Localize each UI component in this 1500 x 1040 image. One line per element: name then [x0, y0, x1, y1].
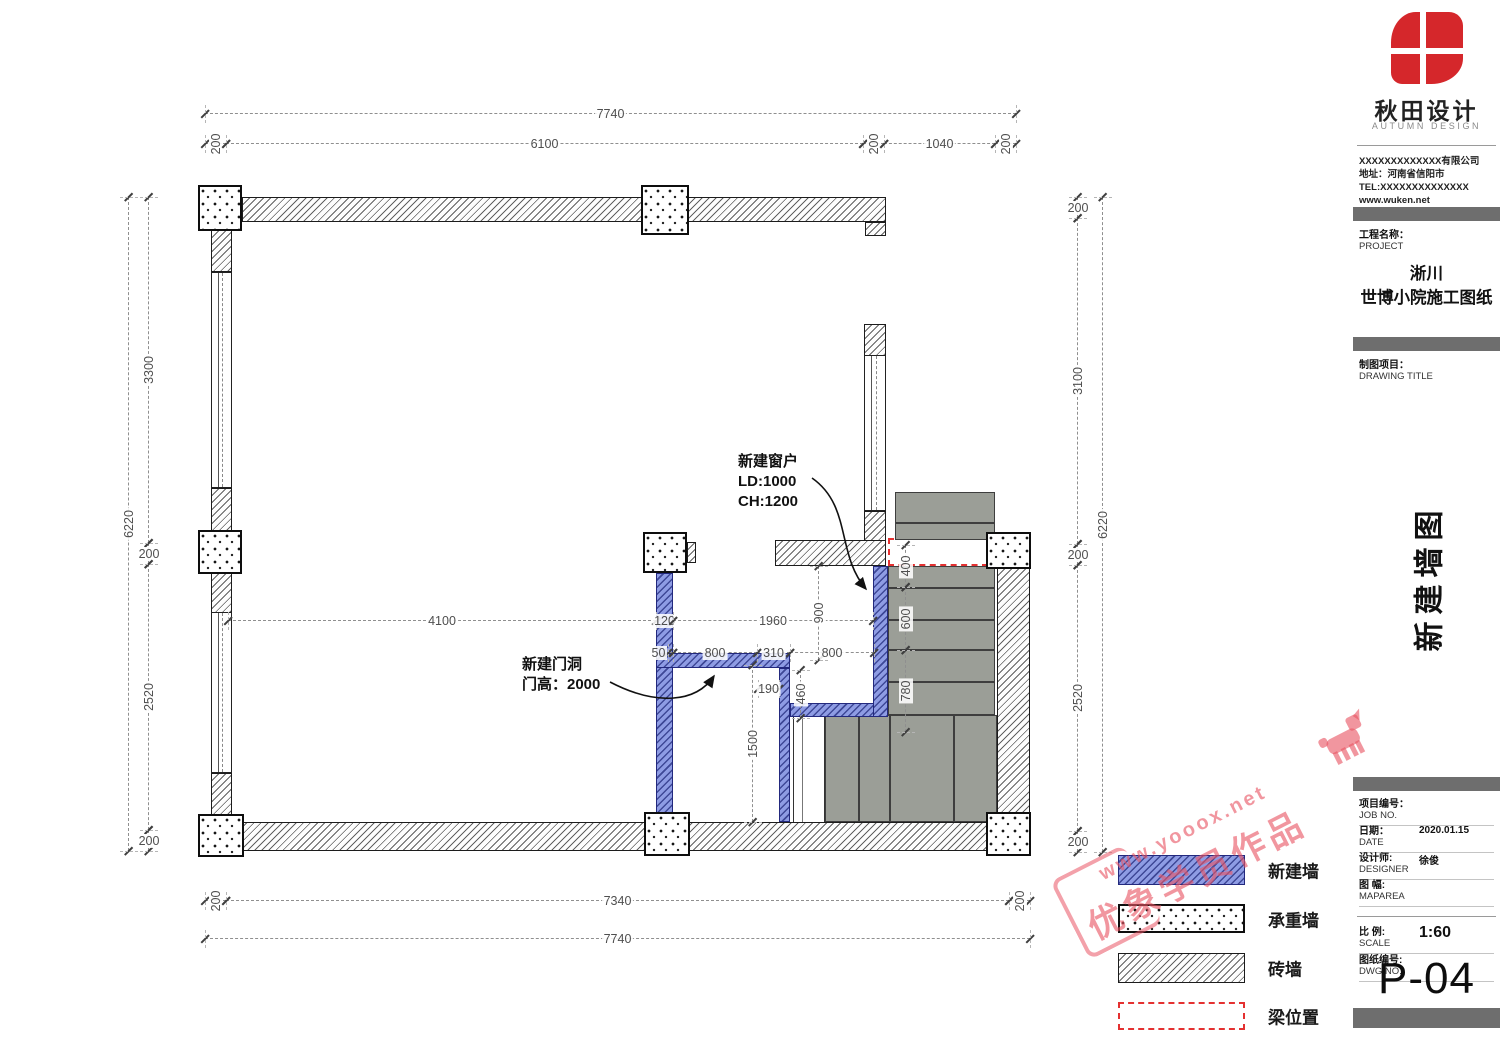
brick-wall	[211, 488, 232, 532]
dim-label: 200	[1066, 201, 1091, 215]
dim-extension	[1030, 892, 1031, 910]
dim-extension	[1016, 135, 1017, 153]
dim-extension	[744, 665, 762, 666]
dim-label: 7340	[602, 894, 634, 908]
project-name-line1: 淅川	[1353, 262, 1500, 286]
dim-extension	[1069, 197, 1087, 198]
dim-label: 3300	[142, 354, 156, 386]
dim-label: 1500	[746, 728, 760, 760]
company-address: 地址：河南省信阳市	[1359, 168, 1479, 181]
dim-extension	[757, 644, 758, 662]
section-bar	[1353, 337, 1500, 351]
dim-label: 3100	[1071, 365, 1085, 397]
dim-extension	[1069, 218, 1087, 219]
column	[986, 532, 1031, 569]
dim-extension	[1016, 105, 1017, 123]
dim-extension	[1030, 930, 1031, 948]
dim-label: 190	[756, 682, 781, 696]
dim-extension	[226, 892, 227, 910]
stair-block	[895, 523, 995, 540]
dim-extension	[673, 612, 674, 630]
brick-wall	[997, 568, 1030, 822]
brick-wall	[211, 573, 232, 613]
leader-note: 新建门洞门高：2000	[522, 655, 600, 695]
company-web: www.wuken.net	[1359, 194, 1479, 207]
legend-label: 承重墙	[1268, 906, 1319, 931]
dim-extension	[744, 822, 762, 823]
dimension: 190	[758, 688, 779, 689]
new-wall	[656, 573, 673, 822]
sheet-number: P-04	[1353, 954, 1500, 1004]
column	[643, 532, 687, 573]
new-wall	[873, 566, 888, 717]
dim-label: 200	[209, 889, 223, 914]
window-symbol	[211, 612, 232, 773]
legend-label: 砖墙	[1268, 956, 1302, 981]
dimension: 1960	[673, 620, 873, 621]
dim-label: 6220	[1096, 509, 1110, 541]
dim-extension	[810, 566, 828, 567]
project-label-cn: 工程名称：	[1359, 226, 1409, 241]
legend-swatch-blue	[1118, 855, 1245, 885]
meta-value: 2020.01.15	[1419, 825, 1469, 836]
title-block: 秋田设计 AUTUMN DESIGN XXXXXXXXXXXXX有限公司 地址：…	[1353, 0, 1500, 1040]
dim-label: 800	[703, 646, 728, 660]
brick-wall	[687, 542, 696, 563]
dim-extension	[140, 197, 158, 198]
stair-block	[895, 492, 995, 523]
stair-edge-line	[802, 715, 803, 822]
drawing-title-vertical: 新建墙图	[1405, 505, 1449, 652]
dim-extension	[897, 545, 915, 546]
dim-extension	[673, 644, 674, 662]
legend-swatch-hatch	[1118, 953, 1245, 983]
meta-label-cn: 图 幅:	[1359, 876, 1494, 891]
column	[198, 814, 244, 857]
meta-value: 徐俊	[1419, 852, 1439, 867]
dimension: 400	[905, 545, 906, 587]
drawing-label-cn: 制图项目：	[1359, 356, 1433, 371]
company-name: XXXXXXXXXXXXX有限公司	[1359, 155, 1479, 168]
dimension: 310	[757, 652, 790, 653]
brick-wall	[211, 822, 1030, 851]
dim-extension	[897, 650, 915, 651]
dimension: 7340	[226, 900, 1009, 901]
dimension: 200	[148, 830, 149, 851]
slab-joint-line	[858, 716, 860, 821]
dimension: 6100	[226, 143, 863, 144]
dim-extension	[810, 660, 828, 661]
brick-wall	[864, 324, 886, 356]
dimension: 7740	[205, 938, 1030, 939]
dimension: 3100	[1077, 218, 1078, 544]
dim-label: 6220	[122, 508, 136, 540]
leader-note-line: 新建门洞	[522, 655, 600, 675]
dim-extension	[226, 135, 227, 153]
drawing-label-en: DRAWING TITLE	[1359, 371, 1433, 382]
dim-extension	[897, 732, 915, 733]
brick-wall	[211, 773, 232, 815]
leader-note-line: CH:1200	[738, 492, 798, 512]
dim-label: 2520	[142, 681, 156, 713]
dim-extension	[1009, 892, 1010, 910]
dim-label: 310	[761, 646, 786, 660]
dim-extension	[792, 670, 810, 671]
meta-value: 1:60	[1419, 924, 1451, 942]
leader-note-line: 门高：2000	[522, 675, 600, 695]
dim-extension	[792, 718, 810, 719]
leader-note: 新建窗户LD:1000CH:1200	[738, 452, 798, 512]
column	[641, 185, 689, 235]
section-bar	[1353, 207, 1500, 221]
meta-label-en: MAPAREA	[1359, 891, 1494, 902]
dim-extension	[873, 612, 874, 630]
dim-extension	[790, 644, 791, 662]
meta-row: 图 幅:MAPAREA	[1359, 873, 1494, 907]
dim-label: 200	[209, 132, 223, 157]
dim-extension	[1069, 565, 1087, 566]
column	[644, 812, 690, 856]
company-info: XXXXXXXXXXXXX有限公司 地址：河南省信阳市 TEL:XXXXXXXX…	[1359, 155, 1479, 207]
dim-extension	[668, 644, 669, 662]
dimension: 6220	[1102, 197, 1103, 852]
window-symbol	[864, 355, 886, 511]
company-logo-icon	[1391, 12, 1463, 84]
dim-label: 50	[650, 646, 668, 660]
dimension: 460	[800, 670, 801, 718]
dim-label: 780	[899, 679, 913, 704]
dim-label: 600	[899, 606, 913, 631]
dim-extension	[1069, 852, 1087, 853]
dim-label: 200	[137, 834, 162, 848]
dim-label: 200	[1066, 835, 1091, 849]
dim-label: 7740	[602, 932, 634, 946]
dim-label: 460	[794, 682, 808, 707]
dim-label: 900	[812, 601, 826, 626]
dim-label: 400	[899, 554, 913, 579]
brick-wall	[775, 540, 886, 566]
dimension: 6220	[128, 197, 129, 851]
dim-extension	[863, 135, 864, 153]
dimension: 200	[995, 143, 1016, 144]
dimension: 1040	[884, 143, 995, 144]
project-name: 淅川 世博小院施工图纸	[1353, 262, 1500, 310]
project-label-en: PROJECT	[1359, 241, 1409, 252]
dim-label: 7740	[595, 107, 627, 121]
dimension: 2520	[1077, 565, 1078, 831]
dim-extension	[140, 543, 158, 544]
dimension: 2520	[148, 564, 149, 830]
drawing-sheet: 7740200610020010402002007340200774062203…	[0, 0, 1500, 1040]
brick-wall	[242, 197, 886, 222]
dim-label: 200	[867, 132, 881, 157]
dim-extension	[897, 587, 915, 588]
brick-wall	[865, 222, 886, 236]
dimension: 7740	[205, 113, 1016, 114]
dim-label: 200	[999, 132, 1013, 157]
dim-extension	[995, 135, 996, 153]
slab-joint-line	[953, 716, 955, 821]
dim-extension	[205, 892, 206, 910]
brick-wall	[864, 511, 886, 541]
brick-wall	[211, 230, 232, 272]
dim-extension	[120, 851, 138, 852]
dim-extension	[205, 135, 206, 153]
dim-extension	[205, 930, 206, 948]
legend-swatch-beam	[1118, 1002, 1245, 1030]
dimension: 4100	[228, 620, 656, 621]
column	[198, 185, 242, 231]
dim-label: 1960	[757, 614, 789, 628]
dim-label: 200	[1066, 548, 1091, 562]
dim-label: 200	[1013, 889, 1027, 914]
divider	[1357, 145, 1496, 146]
dimension: 3300	[148, 197, 149, 543]
dim-extension	[205, 105, 206, 123]
dim-label: 4100	[426, 614, 458, 628]
slab-joint-line	[889, 716, 891, 821]
leader-note-line: 新建窗户	[738, 452, 798, 472]
leader-note-line: LD:1000	[738, 472, 798, 492]
dim-extension	[1069, 544, 1087, 545]
window-leader-arrow	[812, 478, 866, 589]
dim-extension	[120, 197, 138, 198]
dim-label: 800	[820, 646, 845, 660]
dim-label: 200	[137, 547, 162, 561]
legend-label: 梁位置	[1268, 1004, 1319, 1029]
dim-extension	[140, 830, 158, 831]
meta-label-cn: 项目编号：	[1359, 795, 1494, 810]
stair-edge-strip	[793, 715, 825, 822]
dim-extension	[1094, 852, 1112, 853]
dim-extension	[874, 644, 875, 662]
project-name-line2: 世博小院施工图纸	[1353, 286, 1500, 310]
section-bar	[1353, 1008, 1500, 1028]
dim-extension	[884, 135, 885, 153]
dimension: 800	[673, 652, 757, 653]
dim-label: 1040	[924, 137, 956, 151]
dim-extension	[140, 851, 158, 852]
legend-swatch-stipple	[1118, 904, 1245, 933]
dim-label: 2520	[1071, 682, 1085, 714]
window-symbol	[211, 272, 232, 488]
dimension: 800	[790, 652, 874, 653]
legend-label: 新建墙	[1268, 858, 1319, 883]
dim-extension	[1069, 831, 1087, 832]
dim-extension	[228, 612, 229, 630]
dimension: 600	[905, 587, 906, 650]
column	[198, 530, 242, 574]
column	[986, 812, 1031, 856]
section-bar	[1353, 777, 1500, 791]
brand-name-en: AUTUMN DESIGN	[1353, 121, 1500, 131]
dimension: 200	[1077, 831, 1078, 852]
dim-extension	[140, 564, 158, 565]
dim-extension	[1094, 197, 1112, 198]
dimension: 1500	[752, 665, 753, 822]
dimension: 200	[1009, 900, 1030, 901]
divider	[1357, 916, 1496, 917]
dim-label: 6100	[529, 137, 561, 151]
company-tel: TEL:XXXXXXXXXXXXXX	[1359, 181, 1479, 194]
dimension: 780	[905, 650, 906, 732]
